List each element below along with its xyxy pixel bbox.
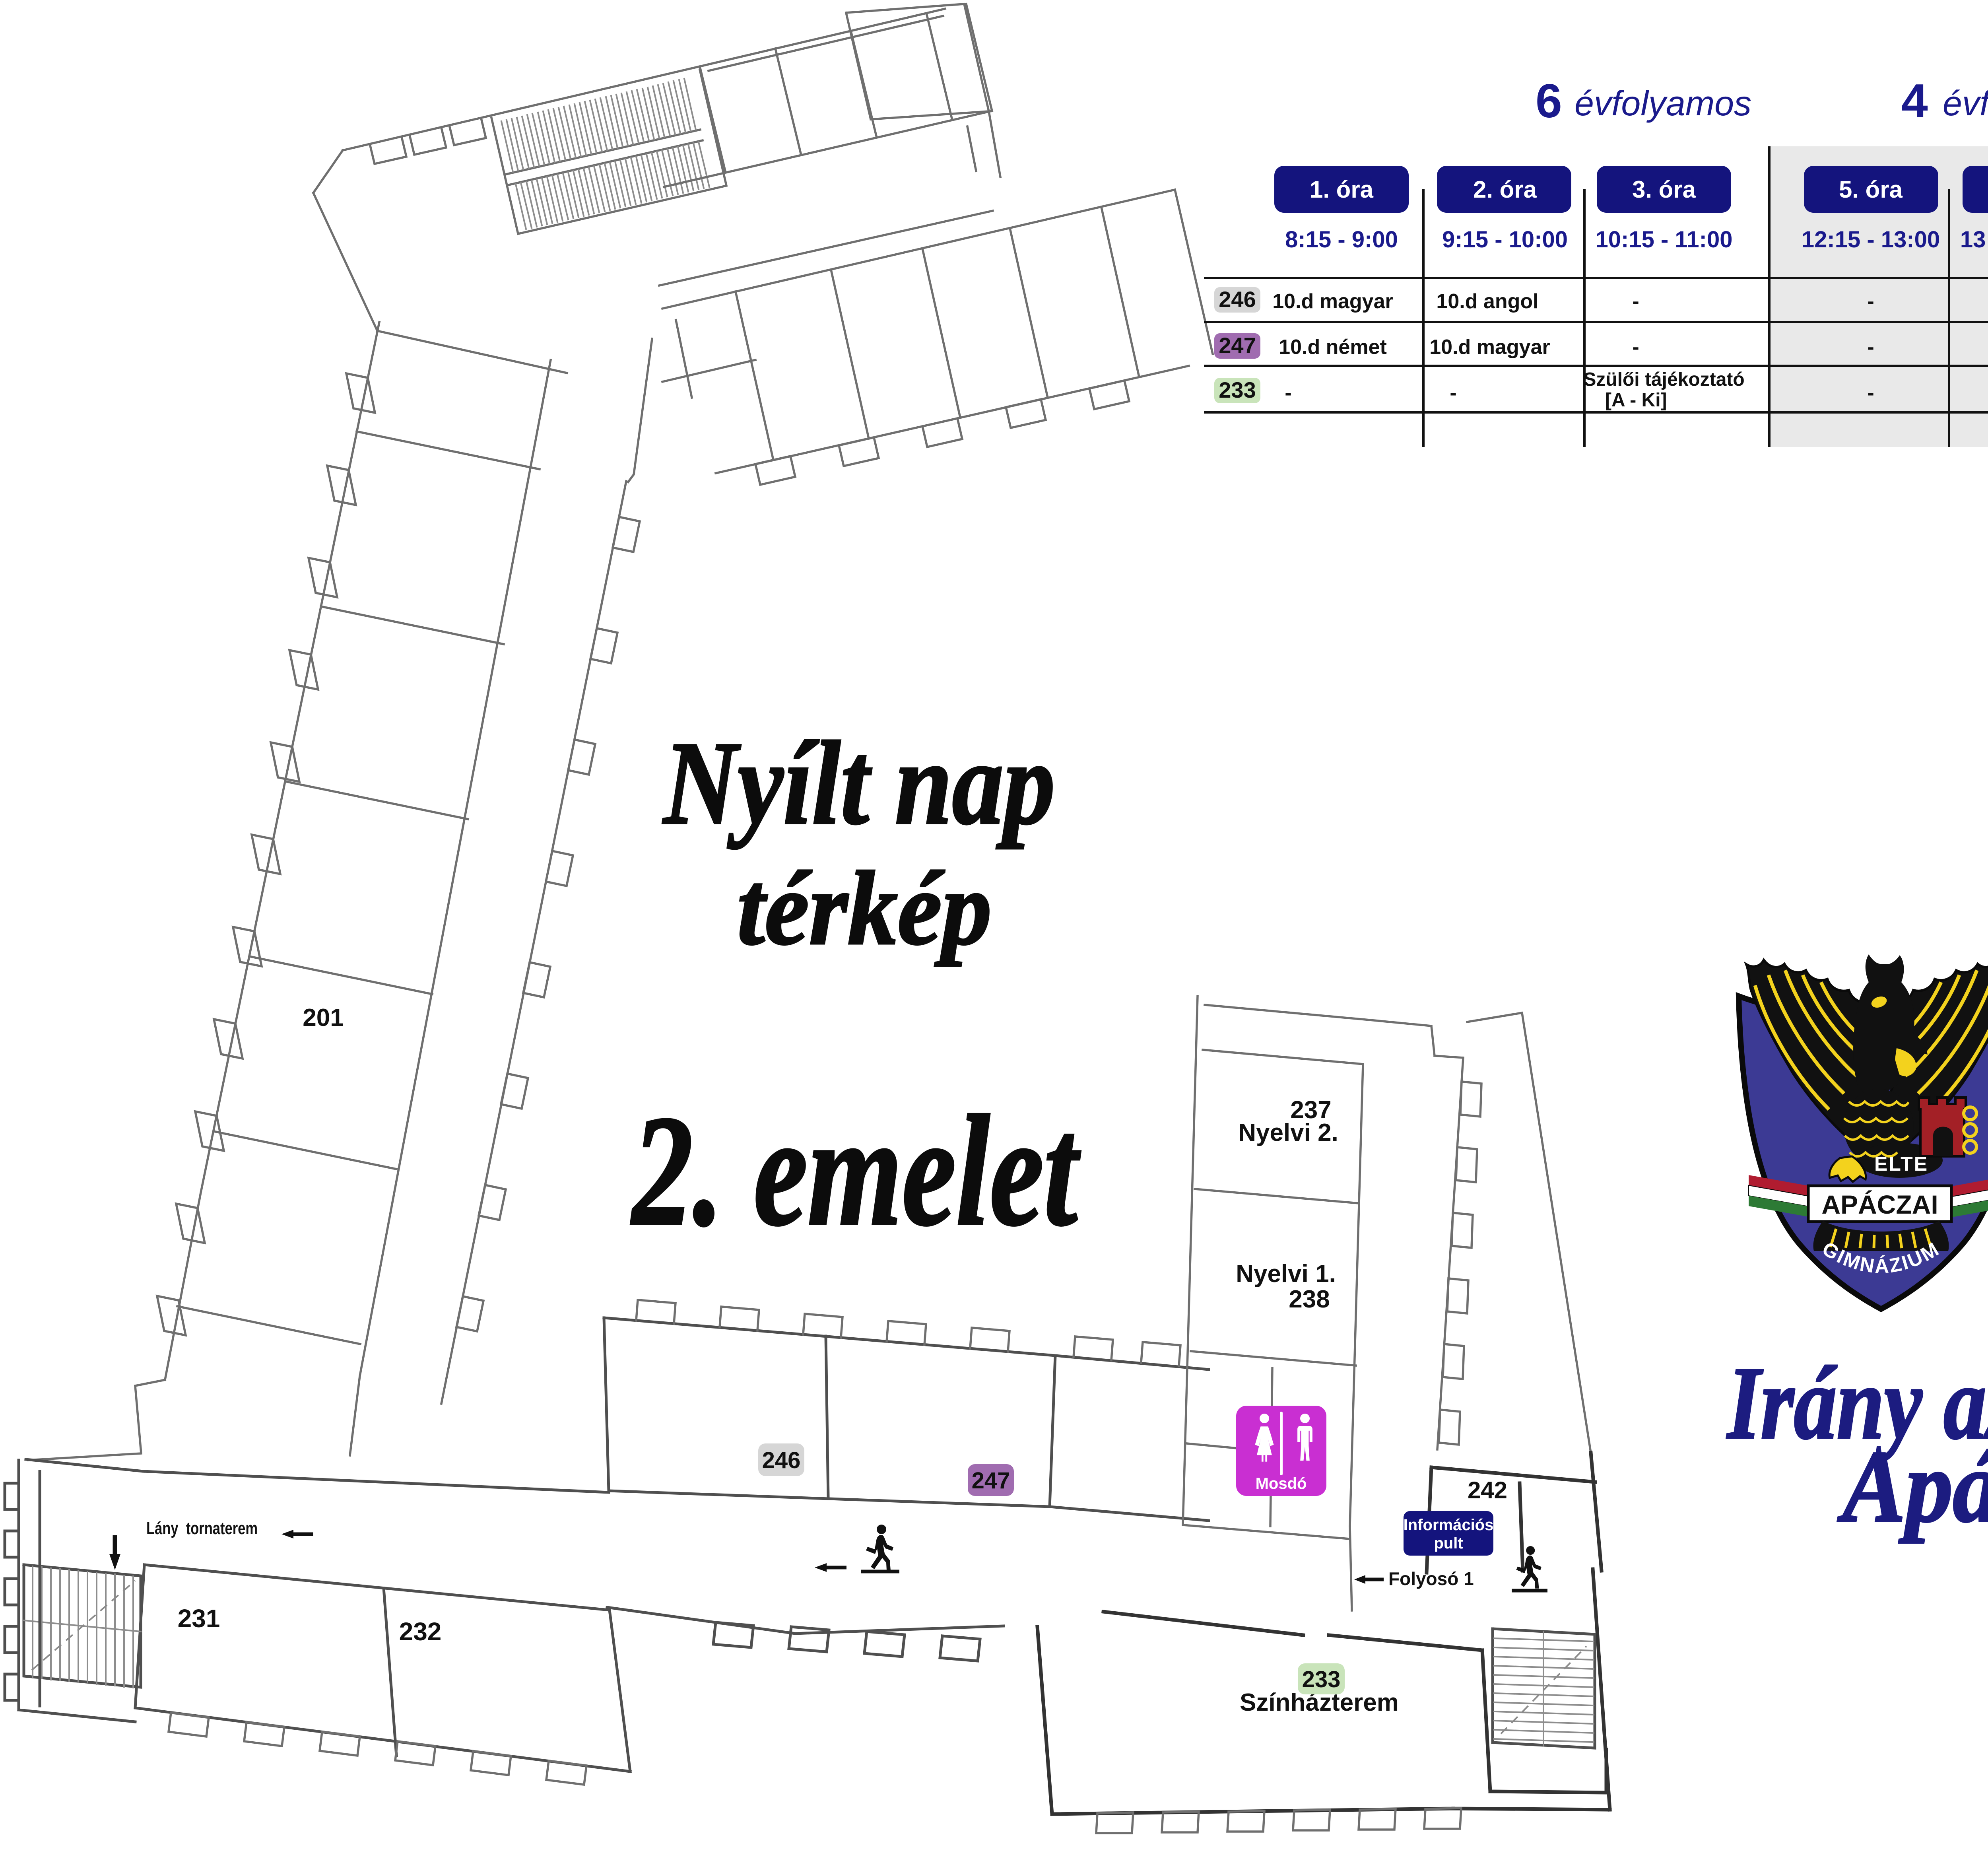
svg-text:2. óra: 2. óra <box>1473 176 1537 203</box>
svg-text:-: - <box>1867 381 1874 404</box>
svg-text:232: 232 <box>399 1617 442 1646</box>
svg-text:5. óra: 5. óra <box>1839 176 1903 203</box>
svg-text:Információs: Információs <box>1404 1516 1494 1534</box>
svg-text:10:15 - 11:00: 10:15 - 11:00 <box>1595 227 1732 253</box>
svg-text:238: 238 <box>1289 1286 1330 1313</box>
svg-text:2. emelet: 2. emelet <box>630 1083 1081 1259</box>
svg-text:242: 242 <box>1468 1477 1507 1504</box>
svg-text:6: 6 <box>1536 74 1562 128</box>
svg-text:10.d magyar: 10.d magyar <box>1429 336 1550 359</box>
svg-text:térkép: térkép <box>737 850 992 967</box>
svg-text:ELTE: ELTE <box>1874 1153 1928 1175</box>
svg-text:13:15 - 14:00: 13:15 - 14:00 <box>1960 227 1988 253</box>
svg-text:Apáczai!: Apáczai! <box>1837 1430 1988 1543</box>
svg-text:8:15 - 9:00: 8:15 - 9:00 <box>1285 227 1398 253</box>
svg-text:Lány tornaterem: Lány tornaterem <box>146 1519 258 1538</box>
svg-text:Nyelvi 1.: Nyelvi 1. <box>1236 1260 1336 1288</box>
svg-text:1. óra: 1. óra <box>1310 176 1374 203</box>
svg-text:9:15 - 10:00: 9:15 - 10:00 <box>1442 227 1568 253</box>
svg-text:246: 246 <box>1219 287 1256 312</box>
svg-text:Szülői tájékoztató: Szülői tájékoztató <box>1583 369 1744 390</box>
svg-text:Nyelvi 2.: Nyelvi 2. <box>1238 1119 1338 1146</box>
svg-text:201: 201 <box>303 1004 344 1031</box>
svg-text:APÁCZAI: APÁCZAI <box>1821 1190 1938 1219</box>
svg-text:10.d német: 10.d német <box>1279 336 1387 359</box>
svg-text:Nyílt nap: Nyílt nap <box>662 717 1055 849</box>
svg-text:-: - <box>1867 336 1874 359</box>
svg-text:10.d magyar: 10.d magyar <box>1272 290 1393 313</box>
svg-text:-: - <box>1632 336 1639 359</box>
svg-text:évfolyamos: évfolyamos <box>1574 84 1751 123</box>
svg-text:247: 247 <box>972 1468 1010 1494</box>
svg-text:12:15 - 13:00: 12:15 - 13:00 <box>1802 227 1940 253</box>
svg-text:231: 231 <box>178 1604 220 1633</box>
svg-text:évfolyamos: évfolyamos <box>1943 84 1988 123</box>
svg-text:3. óra: 3. óra <box>1632 176 1696 203</box>
svg-text:[A - Ki]: [A - Ki] <box>1605 390 1667 411</box>
svg-text:pult: pult <box>1434 1535 1463 1552</box>
svg-text:-: - <box>1867 290 1874 313</box>
svg-text:-: - <box>1632 290 1639 313</box>
svg-text:246: 246 <box>762 1447 801 1473</box>
svg-text:247: 247 <box>1219 333 1256 358</box>
svg-text:233: 233 <box>1219 377 1256 402</box>
svg-text:Folyosó 1: Folyosó 1 <box>1388 1568 1474 1589</box>
svg-text:Mosdó: Mosdó <box>1256 1475 1307 1492</box>
svg-text:-: - <box>1450 381 1456 404</box>
svg-text:-: - <box>1285 381 1291 404</box>
svg-text:4: 4 <box>1901 74 1928 128</box>
svg-text:233: 233 <box>1302 1667 1341 1692</box>
svg-text:10.d angol: 10.d angol <box>1436 290 1538 313</box>
